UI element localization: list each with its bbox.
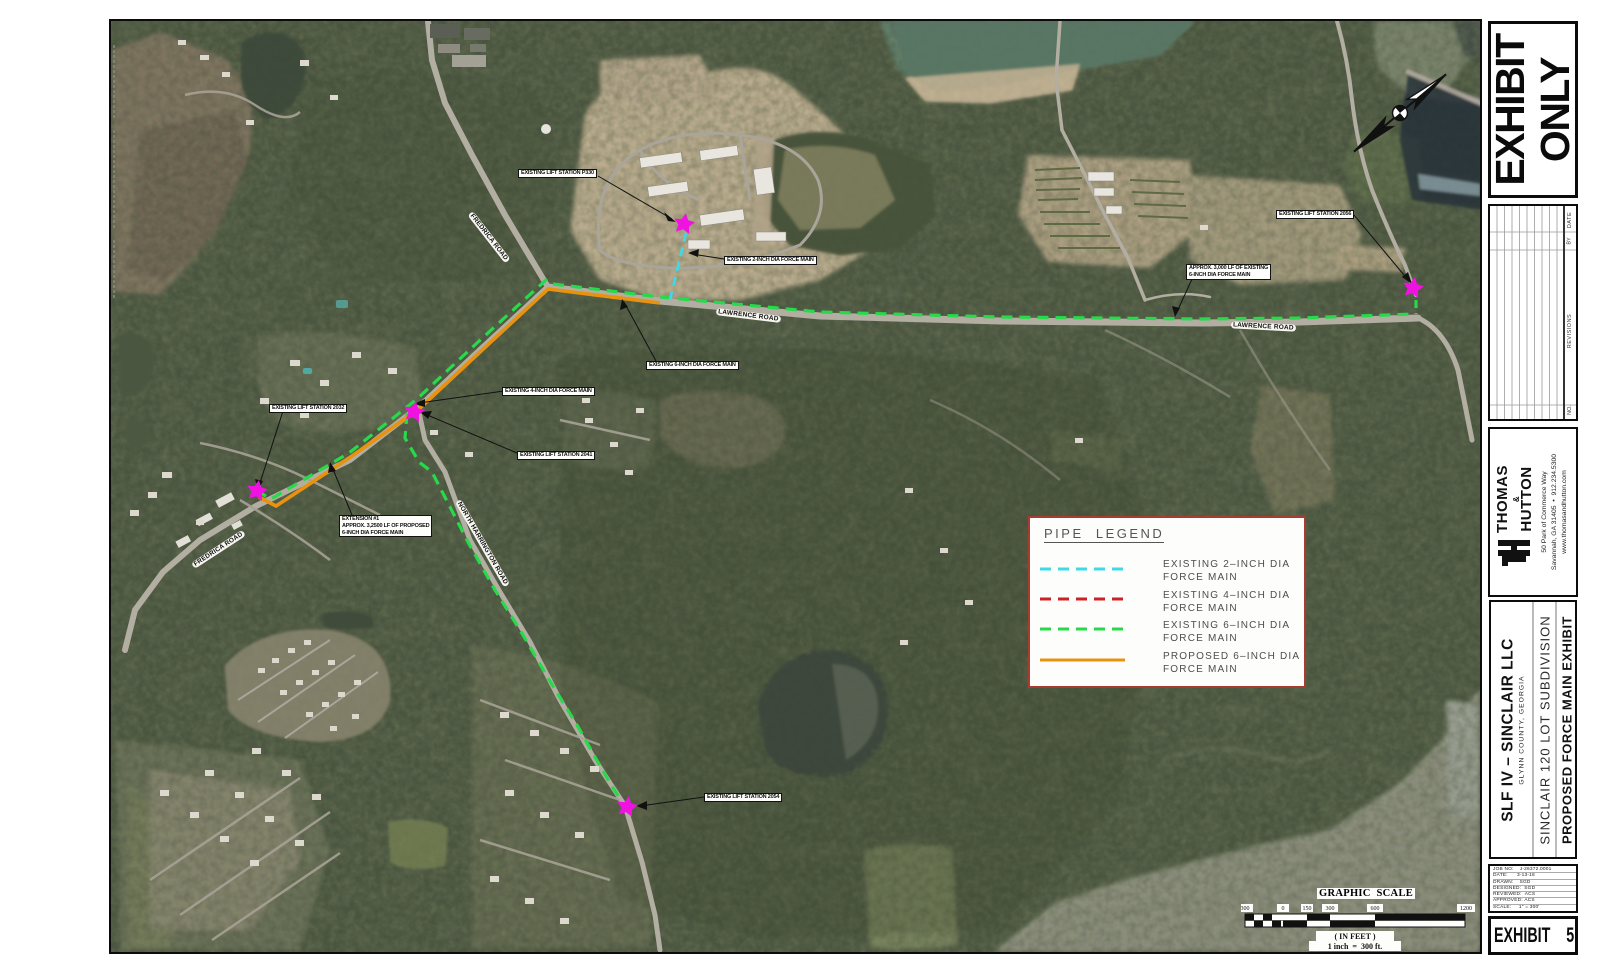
svg-text:600: 600: [1371, 906, 1380, 912]
svg-text:150: 150: [1303, 906, 1312, 912]
svg-text:300: 300: [1241, 906, 1250, 912]
svg-text:( IN FEET ): ( IN FEET ): [1335, 932, 1376, 941]
svg-text:1 inch = 300 ft.: 1 inch = 300 ft.: [1328, 942, 1383, 951]
svg-text:300: 300: [1326, 906, 1335, 912]
svg-text:0: 0: [1282, 906, 1285, 912]
svg-text:1200: 1200: [1460, 906, 1472, 912]
